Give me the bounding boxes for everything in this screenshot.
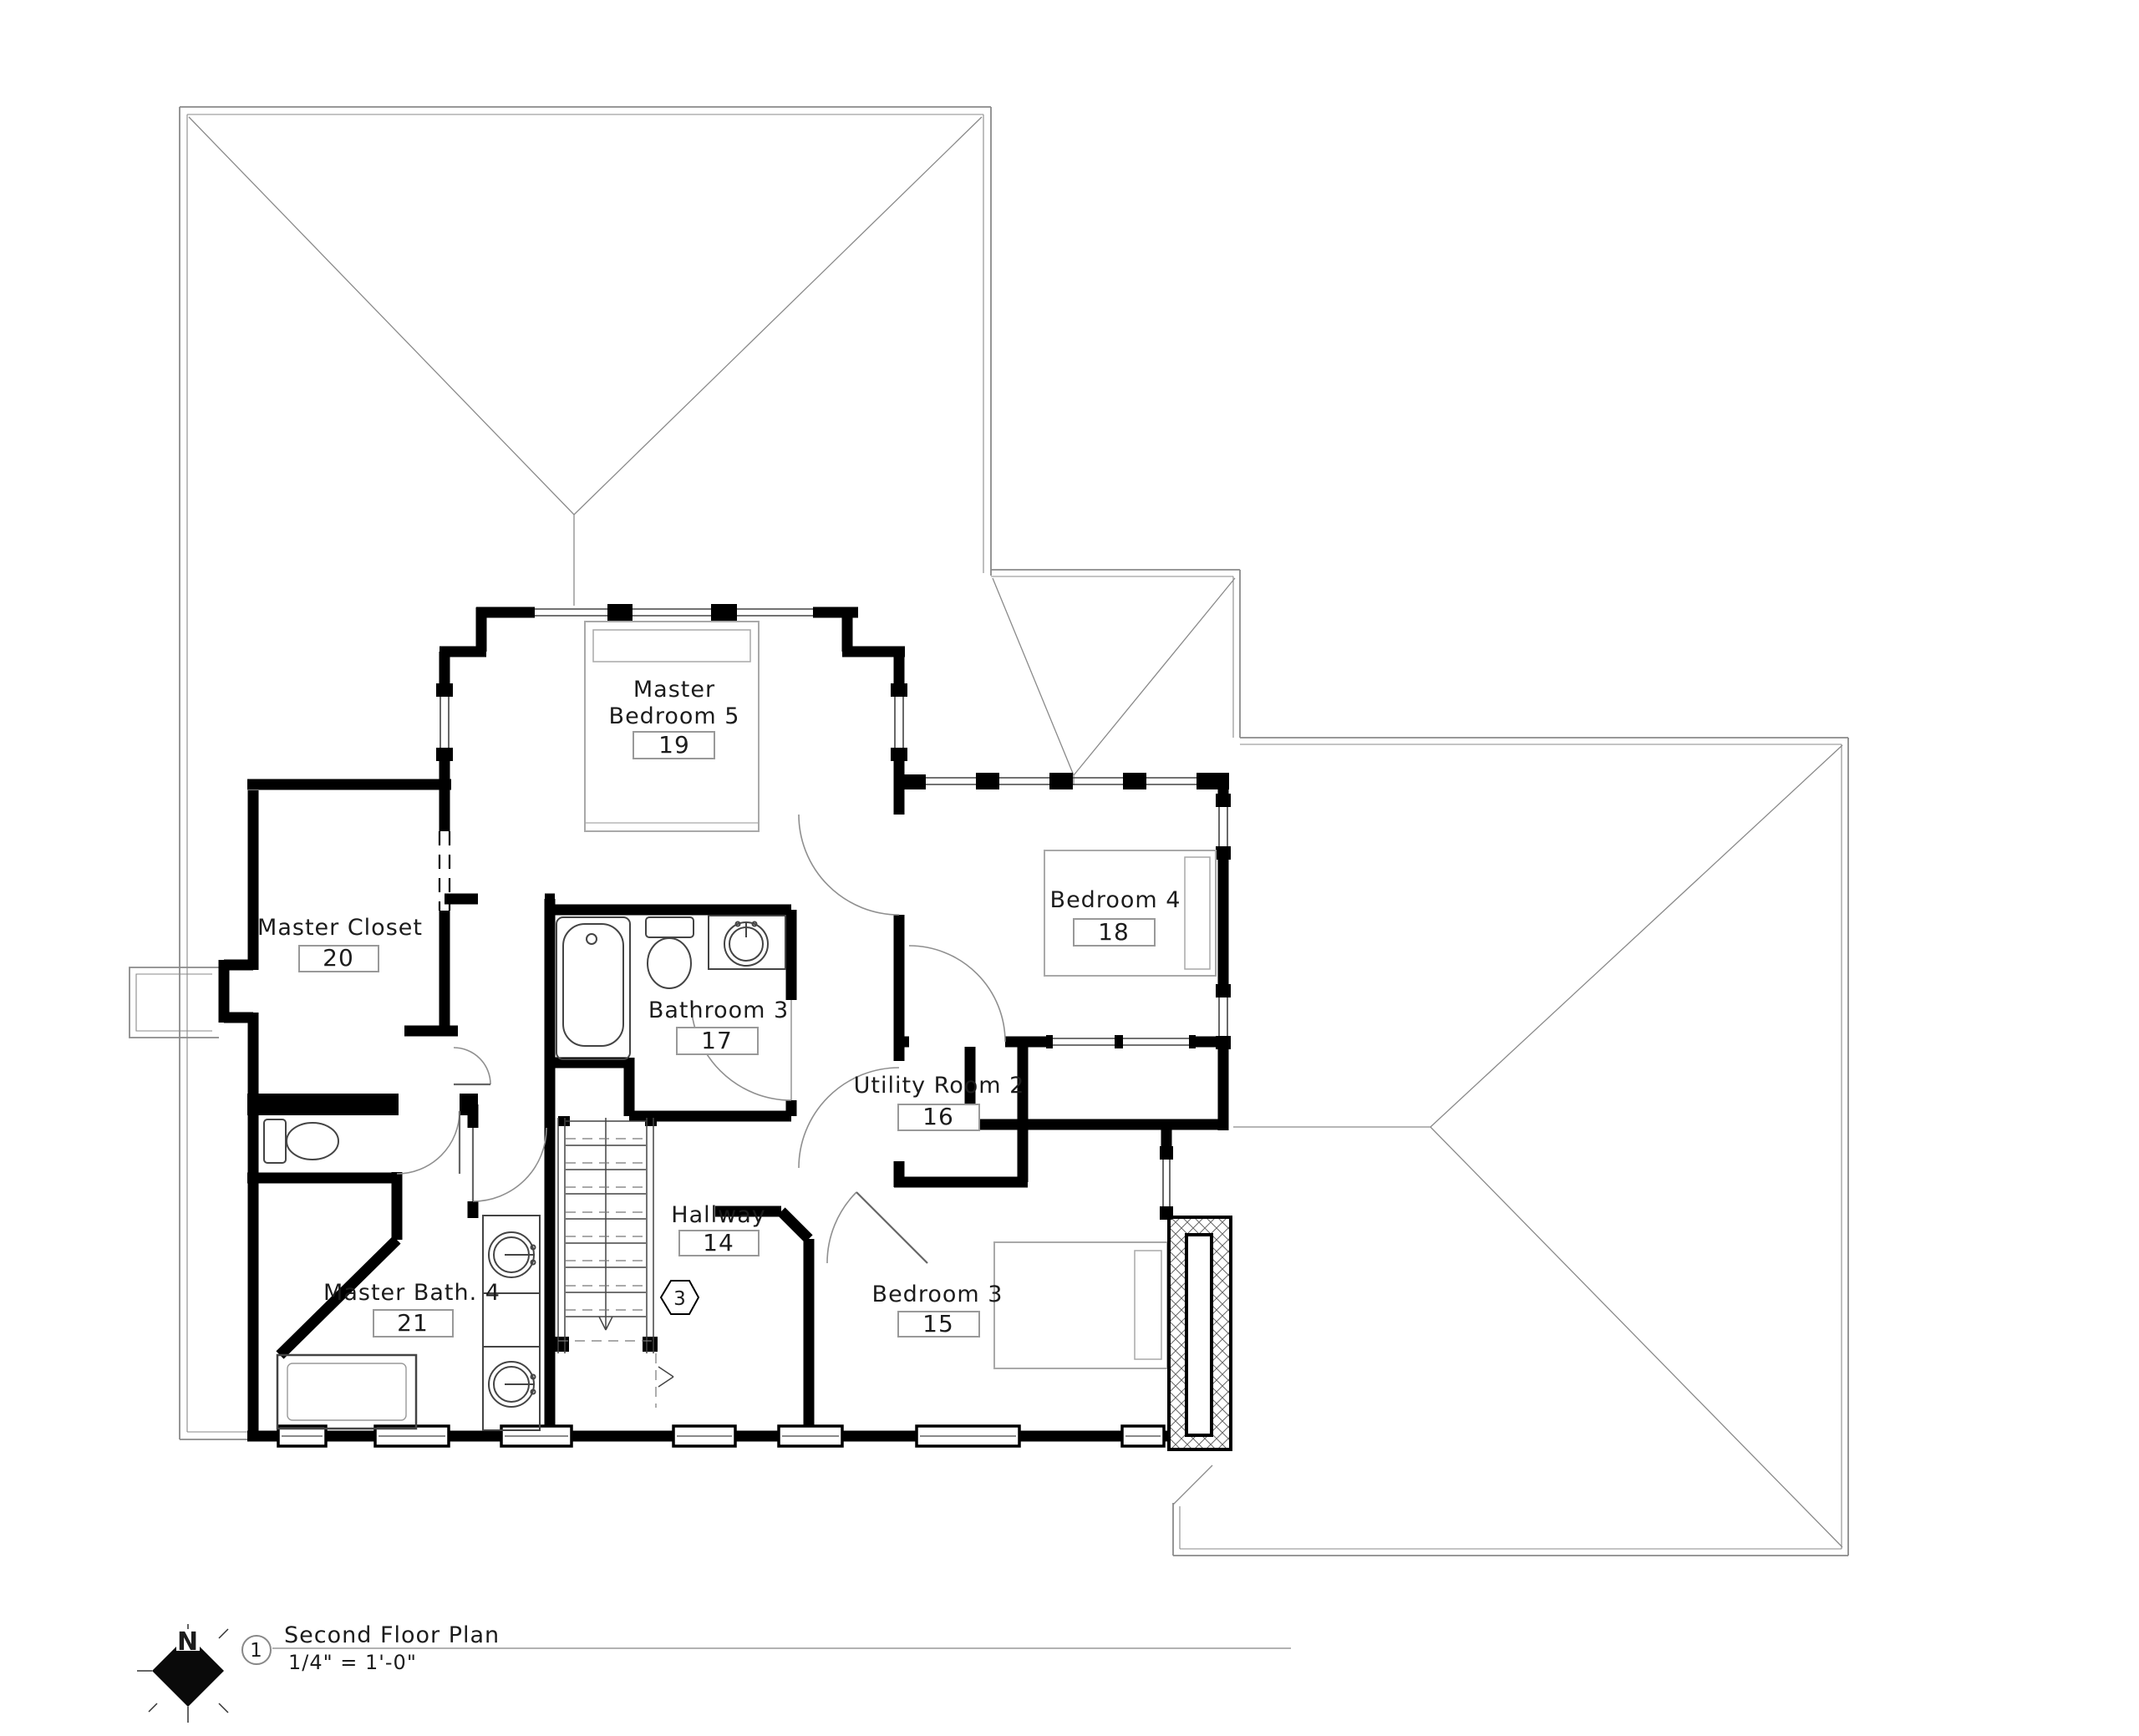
- room-name: Bedroom 4: [1050, 887, 1181, 913]
- roof-outline: [130, 107, 1848, 1556]
- bathtub: [556, 917, 630, 1059]
- floor-plan-sheet: Master Bedroom 5 19 Master Closet 20 Bat…: [0, 0, 2139, 1736]
- room-number: 16: [922, 1103, 954, 1130]
- room-number: 18: [1098, 918, 1130, 946]
- room-label-master-bath-4: Master Bath. 4 21: [323, 1280, 500, 1337]
- shower-master-bath: [277, 1355, 416, 1429]
- toilet-bathroom-3: [646, 917, 694, 988]
- bedroom-4-door-arc: [909, 946, 1005, 1042]
- stair-direction-line: [599, 1118, 612, 1330]
- window-jamb-blocks: [436, 604, 1231, 1352]
- room-number: 21: [397, 1309, 429, 1337]
- room-label-hallway: Hallway 14: [671, 1202, 765, 1256]
- room-name-line2: Bedroom 5: [609, 703, 740, 729]
- toilet-water-closet: [264, 1119, 338, 1163]
- north-arrow-icon: N: [137, 1624, 228, 1723]
- room-number: 17: [701, 1027, 733, 1054]
- north-label: N: [177, 1627, 199, 1657]
- room-label-master-closet: Master Closet 20: [257, 915, 423, 972]
- wc-door-arc: [397, 1111, 460, 1174]
- title-block: N 1 Second Floor Plan 1/4" = 1'-0": [137, 1622, 1291, 1723]
- master-bath-door-arc: [473, 1128, 546, 1201]
- detail-number: 1: [250, 1640, 263, 1662]
- room-name: Master Closet: [257, 915, 423, 941]
- sheet-scale: 1/4" = 1'-0": [288, 1651, 417, 1674]
- room-number: 15: [922, 1310, 954, 1338]
- master-bedroom-door-arc: [799, 815, 899, 915]
- up-arrow: [658, 1367, 673, 1387]
- stair-tag-number: 3: [673, 1288, 687, 1310]
- room-name: Master Bath. 4: [323, 1280, 500, 1306]
- room-label-bathroom-3: Bathroom 3 17: [648, 997, 789, 1054]
- room-name: Master: [633, 677, 715, 703]
- room-number: 19: [658, 731, 690, 759]
- room-number: 14: [703, 1229, 734, 1256]
- stairs: [558, 1118, 673, 1408]
- room-label-bedroom-4: Bedroom 4 18: [1050, 887, 1181, 946]
- room-number: 20: [323, 944, 354, 972]
- sheet-title: Second Floor Plan: [284, 1622, 500, 1648]
- room-name: Bedroom 3: [872, 1282, 1003, 1307]
- bedroom-3-door-arc: [827, 1192, 856, 1263]
- room-name: Hallway: [671, 1202, 765, 1228]
- vestibule-closet-door-arc: [454, 1048, 490, 1084]
- room-label-master-bedroom: Master Bedroom 5 19: [609, 677, 740, 759]
- bedroom-3-door-leaf: [856, 1192, 927, 1263]
- room-label-bedroom-3: Bedroom 3 15: [872, 1282, 1003, 1338]
- floor-plan-drawing: Master Bedroom 5 19 Master Closet 20 Bat…: [0, 0, 2139, 1736]
- chimney: [1169, 1217, 1231, 1449]
- vanity-master-bath: [483, 1216, 540, 1430]
- sink-bathroom-3: [709, 916, 785, 969]
- room-name: Bathroom 3: [648, 997, 789, 1023]
- bed-bedroom-4: [1044, 850, 1216, 976]
- stair-keynote-tag: 3: [661, 1281, 699, 1314]
- room-name: Utility Room 2: [854, 1073, 1025, 1099]
- drawing-title: 1 Second Floor Plan 1/4" = 1'-0": [242, 1622, 1291, 1674]
- bed-bedroom-3: [994, 1242, 1167, 1368]
